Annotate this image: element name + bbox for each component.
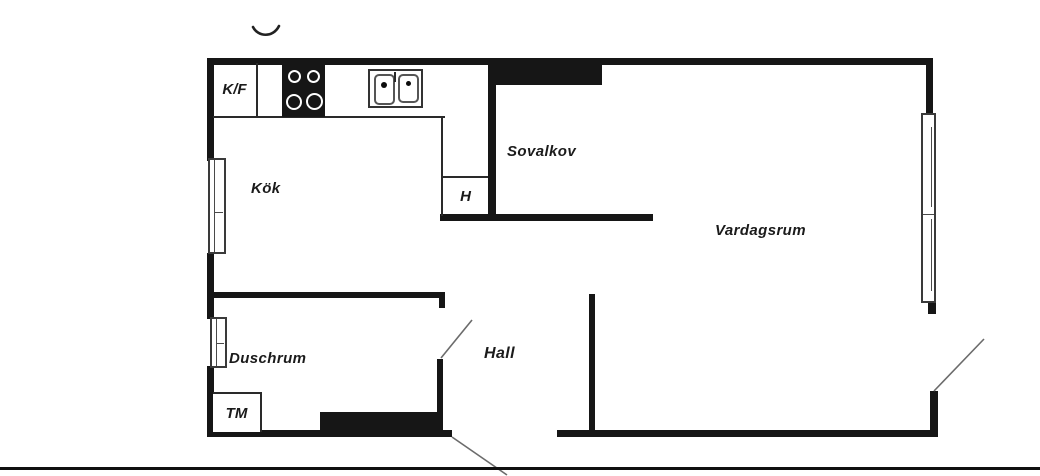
door-swing-shower (441, 320, 472, 358)
floor-plan: K/F H TM Kök Sovalkov Vardags (0, 0, 1040, 476)
closet-box: H (443, 178, 488, 214)
window-shower-room (210, 317, 227, 368)
burner-icon (288, 70, 301, 83)
burner-icon (307, 70, 320, 83)
fridge-freezer-label: K/F (222, 81, 246, 98)
room-label-sleeping-alcove: Sovalkov (507, 144, 576, 159)
sink-basin-left (374, 74, 395, 105)
closet-label: H (460, 188, 471, 205)
washing-machine-label: TM (226, 405, 248, 422)
room-label-kitchen: Kök (251, 181, 281, 196)
wall-left-middle (207, 253, 214, 319)
sink-divider-tick (394, 72, 396, 82)
wall-right-window-stub (928, 302, 936, 314)
window-frame-line (214, 160, 215, 252)
wall-kitchen-alcove (488, 63, 496, 216)
washing-machine-box: TM (213, 392, 262, 432)
fridge-freezer-unit: K/F (213, 63, 258, 116)
storage-block-hall (320, 412, 437, 435)
window-frame-tick (216, 343, 224, 344)
wall-hall-livingroom (589, 294, 595, 437)
counter-edge-line (213, 116, 445, 118)
cropped-text-mark (253, 26, 279, 35)
wall-right-lower-stub (930, 391, 938, 437)
room-label-shower-room: Duschrum (229, 351, 306, 366)
wardrobe-block-alcove (495, 63, 602, 85)
room-label-hall: Hall (484, 346, 515, 362)
window-livingroom (921, 113, 936, 303)
sink-basin-right (398, 74, 419, 103)
drain-icon (381, 82, 387, 88)
window-frame-line (931, 219, 932, 291)
wall-alcove-bottom (440, 214, 653, 221)
sink (368, 69, 423, 108)
wall-right-upper (926, 58, 933, 114)
window-kitchen (208, 158, 226, 254)
wall-hall-shower (437, 359, 443, 437)
stove (282, 63, 325, 117)
window-frame-line (931, 127, 932, 207)
wall-kitchen-shower-endcap (439, 292, 445, 308)
bottom-border-line (0, 467, 1040, 470)
wall-bottom-right (557, 430, 938, 437)
room-label-living-room: Vardagsrum (715, 223, 806, 238)
burner-icon (306, 93, 323, 110)
burner-icon (286, 94, 302, 110)
wall-kitchen-shower (207, 292, 445, 298)
door-swing-balcony (934, 339, 984, 391)
window-frame-tick (214, 212, 223, 213)
window-frame-tick (923, 214, 934, 215)
drain-icon (406, 81, 411, 86)
